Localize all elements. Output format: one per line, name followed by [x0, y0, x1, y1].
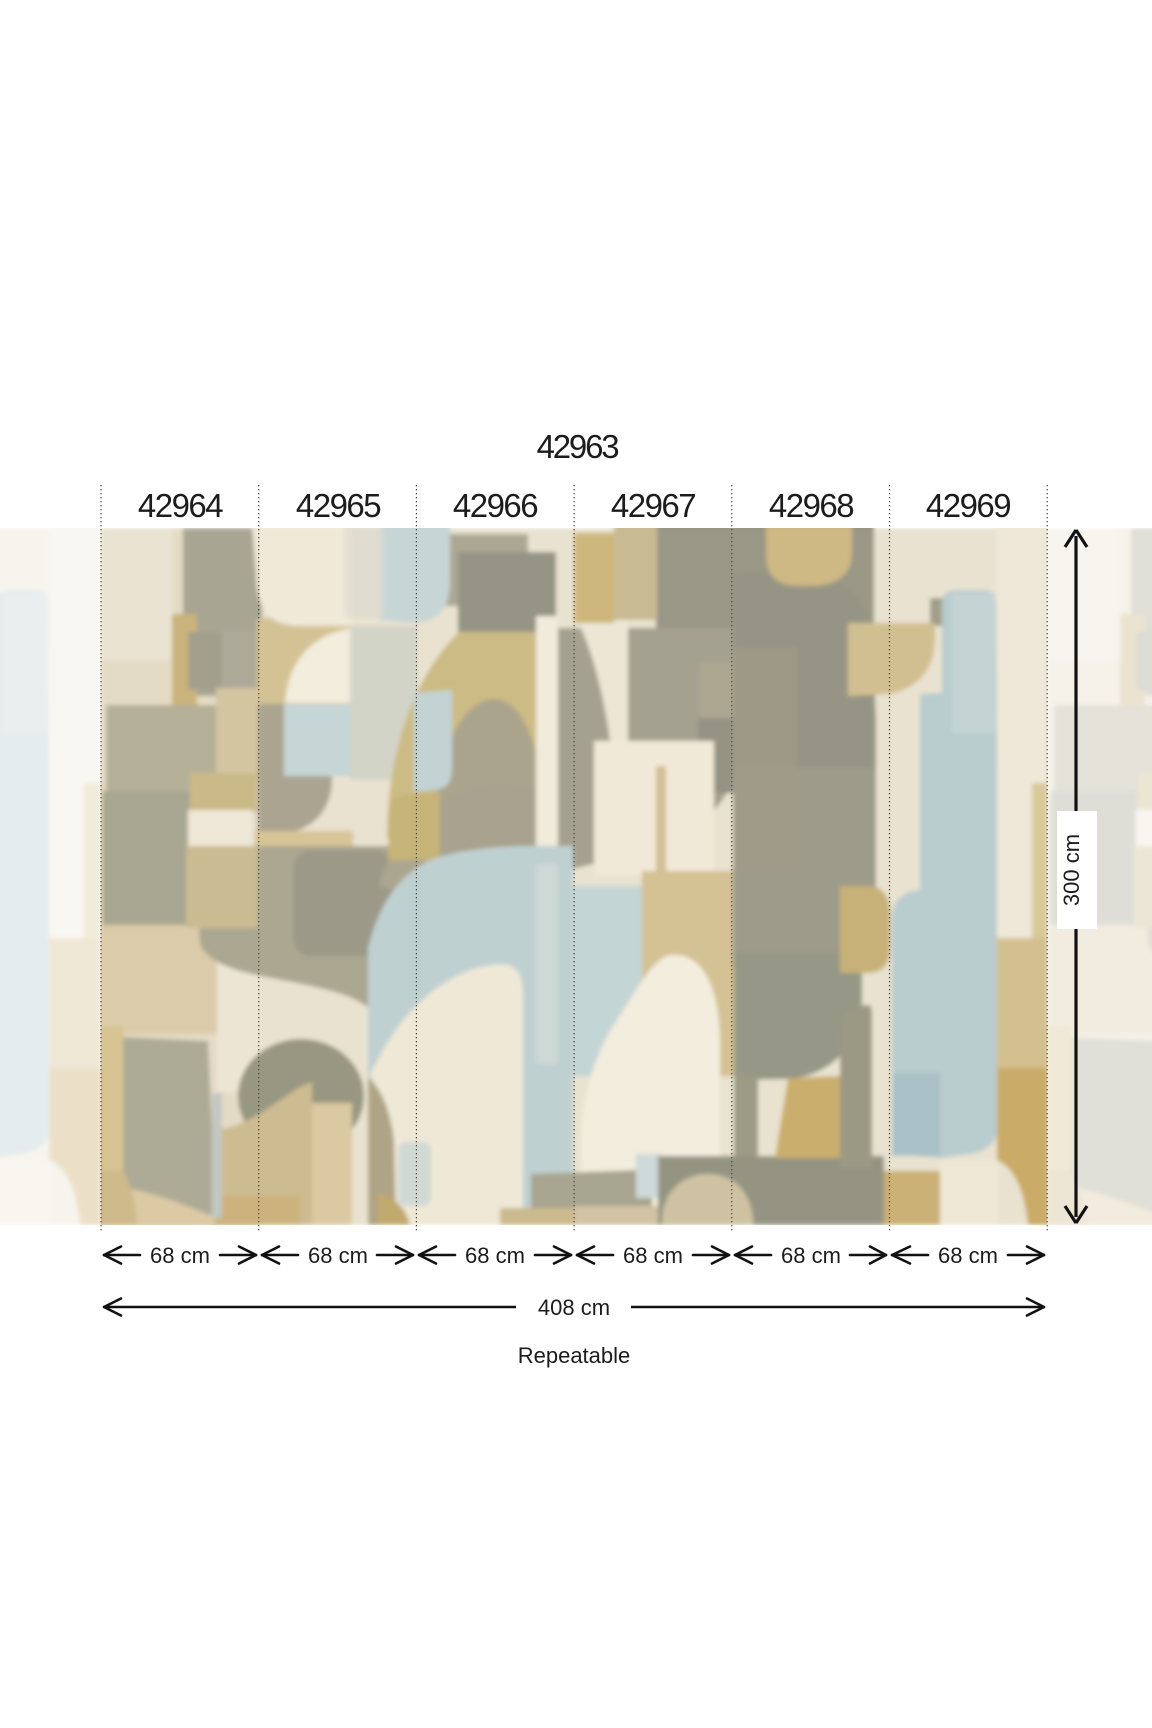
svg-text:300 cm: 300 cm — [1059, 834, 1084, 906]
svg-text:Repeatable: Repeatable — [518, 1343, 631, 1368]
svg-text:68 cm: 68 cm — [465, 1243, 525, 1268]
svg-text:68 cm: 68 cm — [938, 1243, 998, 1268]
svg-text:68 cm: 68 cm — [623, 1243, 683, 1268]
svg-text:42966: 42966 — [453, 487, 537, 524]
svg-text:68 cm: 68 cm — [781, 1243, 841, 1268]
svg-text:42969: 42969 — [926, 487, 1010, 524]
svg-text:42967: 42967 — [611, 487, 695, 524]
svg-text:42965: 42965 — [296, 487, 380, 524]
svg-text:68 cm: 68 cm — [308, 1243, 368, 1268]
svg-text:68 cm: 68 cm — [150, 1243, 210, 1268]
svg-text:42968: 42968 — [769, 487, 853, 524]
svg-text:408 cm: 408 cm — [538, 1295, 610, 1320]
svg-text:42963: 42963 — [537, 428, 619, 465]
svg-text:42964: 42964 — [138, 487, 223, 524]
